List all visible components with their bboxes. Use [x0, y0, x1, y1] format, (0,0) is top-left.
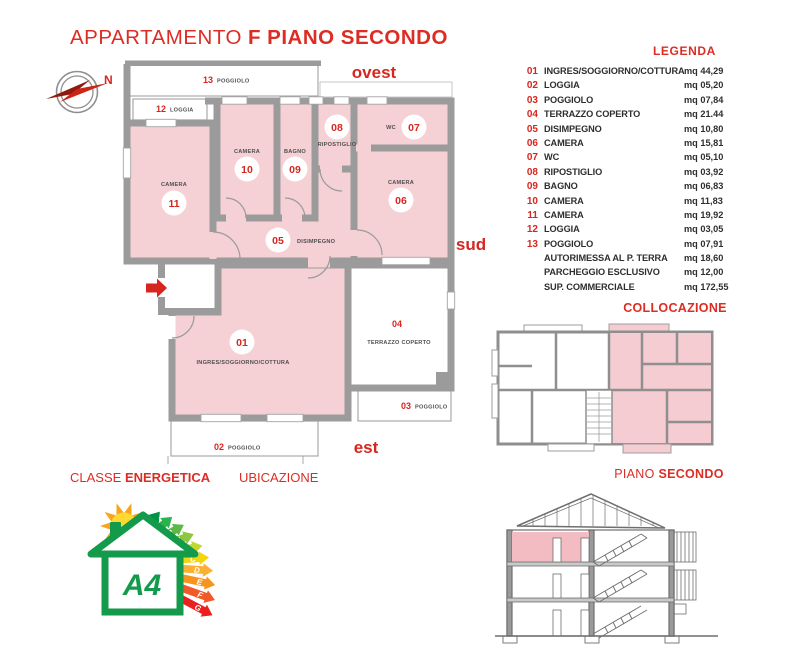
- direction-south: sud: [456, 235, 486, 254]
- energy-class-value: A4: [122, 569, 162, 602]
- legend-row: 06CAMERAmq 15,81: [515, 136, 750, 150]
- label-ripostiglio: RIPOSTIGLIO: [318, 142, 357, 148]
- label-camera-10: CAMERA: [234, 149, 260, 155]
- legend-row: 04TERRAZZO COPERTOmq 21.44: [515, 107, 750, 121]
- label-camera-11: CAMERA: [161, 182, 187, 188]
- energy-label-d: D: [194, 565, 201, 574]
- badge-11: 11: [168, 198, 179, 210]
- legend-row: 10CAMERAmq 11,83: [515, 194, 750, 208]
- page-title-bold: F PIANO SECONDO: [248, 26, 448, 49]
- badge-01: 01: [236, 337, 248, 349]
- num-04: 04: [392, 319, 402, 329]
- label-poggiolo-03: POGGIOLO: [415, 405, 448, 411]
- legend-row: 08RIPOSTIGLIOmq 03,92: [515, 165, 750, 179]
- legend-row: 02LOGGIAmq 05,20: [515, 78, 750, 92]
- badge-10: 10: [241, 164, 253, 176]
- label-camera-06: CAMERA: [388, 180, 414, 186]
- num-13: 13: [203, 75, 213, 85]
- label-disimpegno: DISIMPEGNO: [297, 239, 336, 245]
- direction-west: ovest: [352, 63, 397, 82]
- badge-08: 08: [331, 122, 343, 134]
- legend-rows: 01INGRES/SOGGIORNO/COTTURAmq 44,29 02LOG…: [515, 64, 750, 294]
- label-poggiolo-02: POGGIOLO: [228, 446, 261, 452]
- legend-row: AUTORIMESSA AL P. TERRAmq 18,60: [515, 251, 750, 265]
- building-section: [493, 480, 748, 665]
- label-terrazzo: TERRAZZO COPERTO: [367, 340, 431, 346]
- legend-row: 03POGGIOLOmq 07,84: [515, 93, 750, 107]
- legend-title: LEGENDA: [653, 44, 716, 58]
- num-02: 02: [214, 442, 224, 452]
- legend-row: 09BAGNOmq 06,83: [515, 179, 750, 193]
- label-poggiolo-13: POGGIOLO: [217, 79, 250, 85]
- legend-row: 12LOGGIAmq 03,05: [515, 222, 750, 236]
- collocazione-stairs: [586, 390, 612, 444]
- compass-north-label: N: [104, 73, 113, 87]
- floor-plan: N 11 10 09 08 07 06 05 01 CAMERA CAMERA …: [40, 52, 490, 467]
- badge-09: 09: [289, 164, 301, 176]
- piano-title: PIANO SECONDO: [589, 467, 749, 481]
- entrance-arrow-icon: [146, 279, 167, 298]
- collocazione-map: [492, 322, 724, 462]
- page-title: APPARTAMENTOF PIANO SECONDO: [70, 26, 448, 50]
- legend-row: 07WCmq 05,10: [515, 150, 750, 164]
- num-12: 12: [156, 104, 166, 114]
- ubicazione-title: UBICAZIONE: [239, 470, 318, 485]
- energy-class-graphic: A4 A3 A2 A1 B C D E F G A4: [58, 492, 288, 662]
- direction-east: est: [354, 438, 379, 457]
- label-loggia-12: LOGGIA: [170, 108, 194, 114]
- collocazione-title: COLLOCAZIONE: [595, 301, 755, 315]
- label-wc: WC: [386, 125, 396, 131]
- roof-line: [320, 82, 452, 97]
- legend-row: PARCHEGGIO ESCLUSIVOmq 12,00: [515, 265, 750, 279]
- badge-06: 06: [395, 195, 407, 207]
- legend-row: SUP. COMMERCIALEmq 172,55: [515, 280, 750, 294]
- label-bagno: BAGNO: [284, 149, 306, 155]
- room-01: [172, 265, 348, 418]
- label-soggiorno: INGRES/SOGGIORNO/COTTURA: [196, 360, 289, 366]
- compass-icon: N: [46, 72, 113, 113]
- brochure-page: APPARTAMENTOF PIANO SECONDO: [0, 0, 800, 665]
- badge-07: 07: [408, 122, 420, 134]
- classe-energetica-title: CLASSE ENERGETICA: [70, 470, 210, 485]
- section-drawing: [495, 494, 718, 643]
- badge-05: 05: [272, 235, 284, 247]
- num-03: 03: [401, 401, 411, 411]
- section-stairs: [593, 534, 647, 638]
- legend-row: 11CAMERAmq 19,92: [515, 208, 750, 222]
- legend-row: 01INGRES/SOGGIORNO/COTTURAmq 44,29: [515, 64, 750, 78]
- page-title-regular: APPARTAMENTO: [70, 26, 242, 49]
- legend-row: 05DISIMPEGNOmq 10,80: [515, 122, 750, 136]
- legend-row: 13POGGIOLOmq 07,91: [515, 237, 750, 251]
